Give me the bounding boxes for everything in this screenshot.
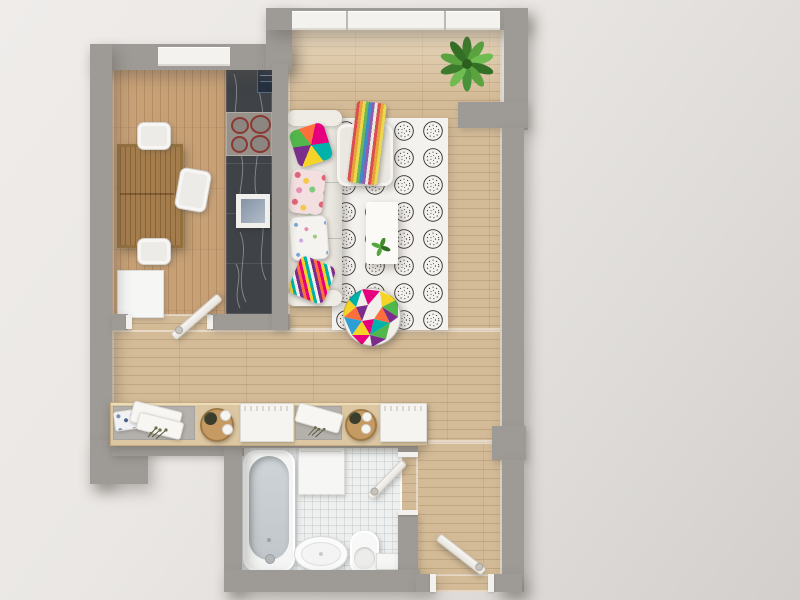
door-jamb <box>430 574 436 592</box>
jar <box>361 424 371 434</box>
table-plant-icon <box>371 238 391 256</box>
box-ridges <box>244 406 290 411</box>
kitchen-cabinet <box>117 270 164 318</box>
toilet-seat <box>354 547 375 569</box>
burner-icon <box>250 135 270 153</box>
living-window <box>292 11 500 30</box>
sink-basin <box>241 199 265 223</box>
basin-drain-icon <box>319 552 323 556</box>
counter-segment-lines <box>226 64 272 316</box>
washer-cabinet <box>298 446 345 495</box>
corner-plant-icon <box>440 36 494 92</box>
wall-bath-south <box>224 570 420 592</box>
pillow-candy <box>288 168 326 215</box>
burner-icon <box>250 115 271 134</box>
wall-right-lower <box>502 460 524 592</box>
dried-plant-icon <box>146 424 172 440</box>
dried-plant-icon <box>306 424 330 438</box>
door-jamb <box>207 315 213 329</box>
dining-chair-south <box>137 238 171 265</box>
oval-basin <box>294 536 348 572</box>
storage-box <box>240 403 294 442</box>
wall-left <box>90 44 112 484</box>
washer-edge-line <box>301 451 341 452</box>
door-jamb <box>488 574 494 592</box>
multicolor-pouf <box>342 287 402 347</box>
dining-chair-north <box>137 122 171 150</box>
wall-kitchen-living-divider <box>272 64 288 330</box>
kitchen-window <box>158 47 230 66</box>
bathtub-drain-icon <box>267 538 271 542</box>
toilet <box>350 531 379 573</box>
door-jamb <box>398 452 418 457</box>
entry-door-gap-floor <box>432 574 492 592</box>
kitchen-counter <box>226 64 272 316</box>
kitchen-sink <box>236 194 270 228</box>
cooktop <box>226 112 272 156</box>
jar <box>220 410 231 421</box>
wall-right-pillar <box>458 102 528 128</box>
wall-right-main <box>502 128 524 460</box>
door-jamb <box>398 510 418 515</box>
bathtub-faucet-icon <box>265 554 275 564</box>
box-ridges <box>384 406 423 411</box>
storage-box <box>380 403 427 442</box>
bathtub <box>243 450 295 572</box>
pillow-white-doodle <box>289 215 330 262</box>
window-mullion <box>444 11 446 30</box>
jar <box>362 412 372 422</box>
floor-plan-render <box>0 0 800 600</box>
burner-icon <box>231 117 249 134</box>
jar <box>222 424 233 435</box>
wall-bath-right-b <box>398 512 418 574</box>
plant-pot <box>204 412 217 425</box>
table-seam <box>120 193 174 195</box>
door-jamb <box>126 315 132 329</box>
dining-table <box>117 144 183 248</box>
bathtub-basin <box>249 456 289 560</box>
wall-entry-south-b <box>492 574 522 592</box>
wall-right-bump <box>492 426 526 460</box>
plant-pot <box>349 412 361 424</box>
window-mullion <box>346 11 348 30</box>
burner-icon <box>231 136 248 153</box>
